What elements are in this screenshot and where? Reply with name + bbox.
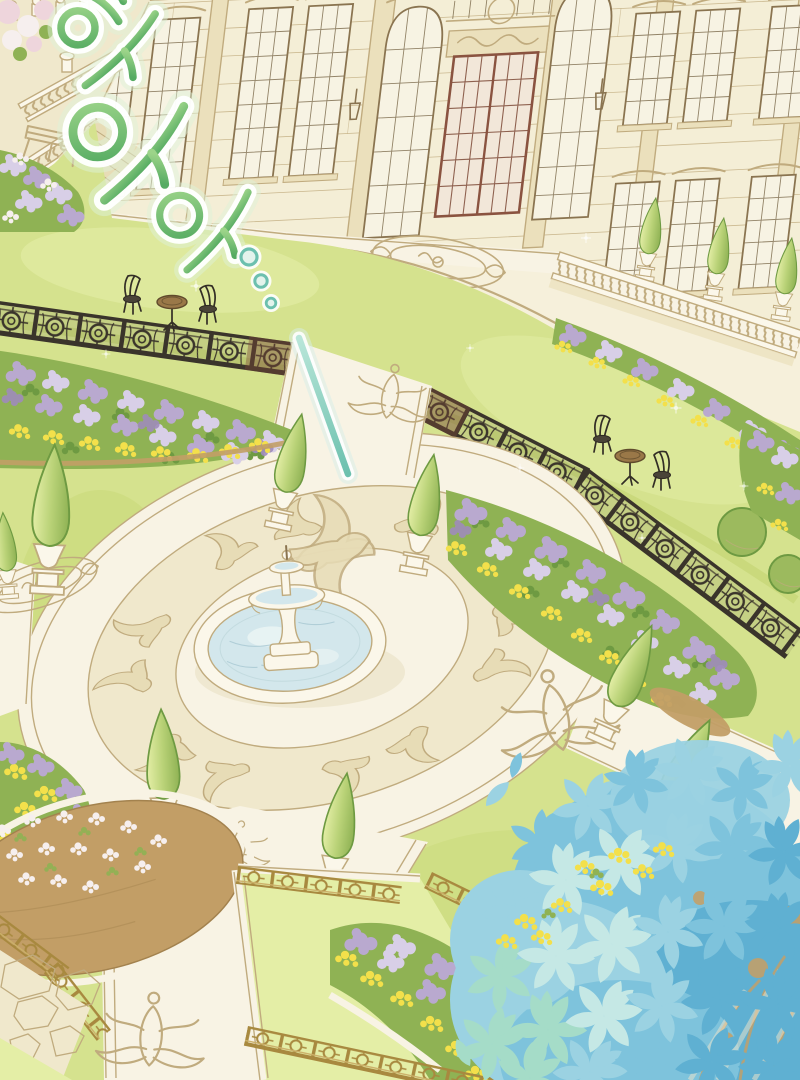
webtoon-panel: 하아아 <box>0 0 800 1080</box>
garden-scene <box>0 0 800 1080</box>
